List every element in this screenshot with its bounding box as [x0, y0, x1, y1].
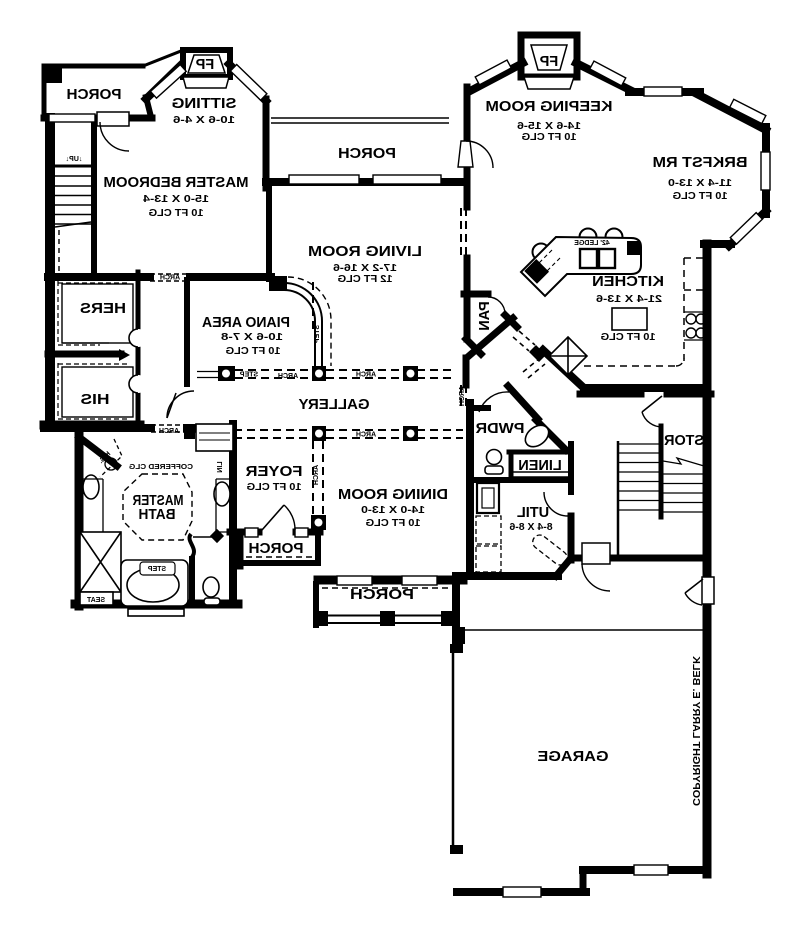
- svg-text:UTIL: UTIL: [517, 505, 549, 521]
- svg-text:PORCH: PORCH: [67, 87, 122, 103]
- svg-text:SEAT: SEAT: [86, 597, 105, 604]
- svg-text:42' LEDGE: 42' LEDGE: [574, 240, 610, 247]
- svg-text:PWDR: PWDR: [475, 421, 525, 437]
- svg-text:DINING ROOM: DINING ROOM: [338, 487, 448, 503]
- svg-text:10 FT CLG: 10 FT CLG: [149, 207, 204, 219]
- svg-text:STEP: STEP: [314, 325, 321, 344]
- svg-text:KEEPING ROOM: KEEPING ROOM: [486, 99, 613, 115]
- svg-text:ARCH: ARCH: [356, 432, 376, 439]
- svg-text:ARCH: ARCH: [459, 386, 466, 406]
- svg-text:LIN: LIN: [217, 461, 224, 472]
- svg-text:HIS: HIS: [80, 392, 109, 408]
- svg-text:10 FT CLG: 10 FT CLG: [601, 331, 656, 343]
- svg-text:MASTER BEDROOM: MASTER BEDROOM: [104, 175, 249, 191]
- svg-text:12 FT CLG: 12 FT CLG: [338, 273, 393, 285]
- svg-text:ARCH: ARCH: [160, 275, 180, 282]
- svg-text:↓UP↓: ↓UP↓: [66, 156, 83, 163]
- svg-text:COFFERED CLG: COFFERED CLG: [128, 464, 193, 471]
- svg-text:10 FT CLG: 10 FT CLG: [366, 517, 421, 529]
- svg-text:8-4 X 8-6: 8-4 X 8-6: [509, 521, 552, 533]
- svg-text:PORCH: PORCH: [249, 541, 304, 557]
- svg-text:COPYRIGHT LARRY E. BELK: COPYRIGHT LARRY E. BELK: [690, 656, 702, 806]
- svg-text:10 FT CLG: 10 FT CLG: [673, 190, 728, 202]
- svg-text:STEP: STEP: [148, 566, 167, 573]
- svg-text:FP: FP: [539, 54, 558, 70]
- svg-text:STEP: STEP: [240, 372, 259, 379]
- svg-text:LIVING ROOM: LIVING ROOM: [308, 244, 422, 260]
- svg-text:11-4 X 13-0: 11-4 X 13-0: [668, 177, 732, 189]
- svg-text:PIANO AREA: PIANO AREA: [201, 315, 290, 331]
- svg-text:ARCH: ARCH: [313, 465, 320, 485]
- svg-text:BATH: BATH: [139, 507, 176, 523]
- svg-text:GALLERY: GALLERY: [298, 397, 369, 413]
- svg-text:ARCH: ARCH: [159, 428, 179, 435]
- svg-text:ARCH: ARCH: [278, 373, 298, 380]
- svg-text:FOYER: FOYER: [245, 464, 303, 480]
- svg-text:SITTING: SITTING: [172, 96, 237, 112]
- svg-text:10 FT CLG: 10 FT CLG: [247, 481, 302, 493]
- svg-text:15-0 X 13-4: 15-0 X 13-4: [143, 193, 209, 205]
- svg-text:10-6 X 7-8: 10-6 X 7-8: [221, 331, 283, 343]
- svg-text:10 FT CLG: 10 FT CLG: [226, 345, 281, 357]
- svg-text:PORCH: PORCH: [338, 146, 396, 162]
- svg-text:FP: FP: [195, 57, 214, 73]
- svg-text:10-6 X 4-6: 10-6 X 4-6: [173, 114, 235, 126]
- svg-text:KITCHEN: KITCHEN: [592, 274, 664, 290]
- svg-text:21-4 X 13-6: 21-4 X 13-6: [596, 293, 662, 305]
- svg-text:ARCH: ARCH: [356, 372, 376, 379]
- svg-text:10 FT CLG: 10 FT CLG: [522, 131, 577, 143]
- svg-text:PAN: PAN: [477, 301, 493, 331]
- svg-text:STOR: STOR: [663, 433, 704, 449]
- svg-text:BRKFST RM: BRKFST RM: [653, 155, 748, 171]
- svg-text:14-0 X 13-0: 14-0 X 13-0: [361, 504, 425, 516]
- svg-text:GARAGE: GARAGE: [537, 749, 608, 765]
- svg-text:HERS: HERS: [80, 301, 126, 317]
- svg-text:LINEN: LINEN: [518, 458, 562, 474]
- svg-text:PORCH: PORCH: [350, 587, 414, 603]
